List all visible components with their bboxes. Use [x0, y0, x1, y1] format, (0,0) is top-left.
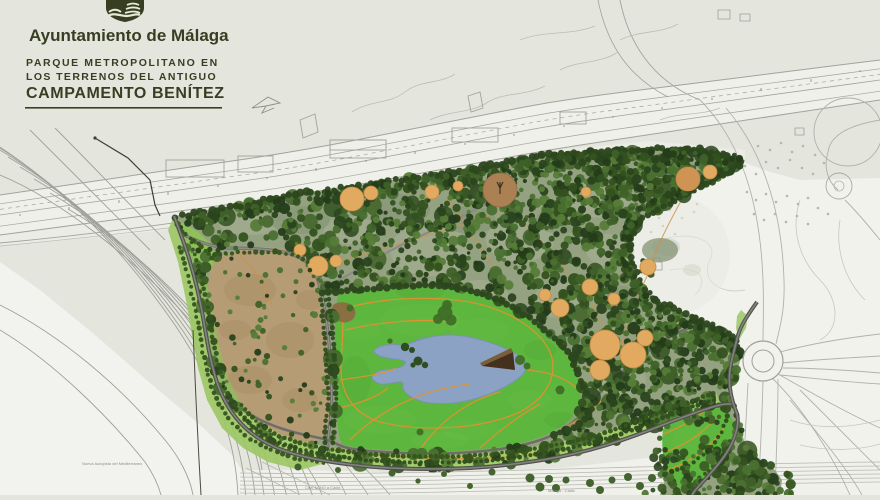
svg-text:CAMPAMENTO BENÍTEZ: CAMPAMENTO BENÍTEZ: [26, 83, 225, 102]
svg-text:Ayuntamiento de Málaga: Ayuntamiento de Málaga: [29, 26, 229, 45]
svg-text:Málaga - Cádiz: Málaga - Cádiz: [548, 488, 575, 493]
svg-text:PARQUE METROPOLITANO EN: PARQUE METROPOLITANO EN: [26, 57, 219, 69]
svg-text:Nueva Autopista del Mediterrán: Nueva Autopista del Mediterráneo: [82, 461, 143, 466]
svg-text:LOS TERRENOS DEL ANTIGUO: LOS TERRENOS DEL ANTIGUO: [26, 71, 217, 83]
svg-text:Ctra. N-340 a Cádiz: Ctra. N-340 a Cádiz: [305, 485, 340, 490]
